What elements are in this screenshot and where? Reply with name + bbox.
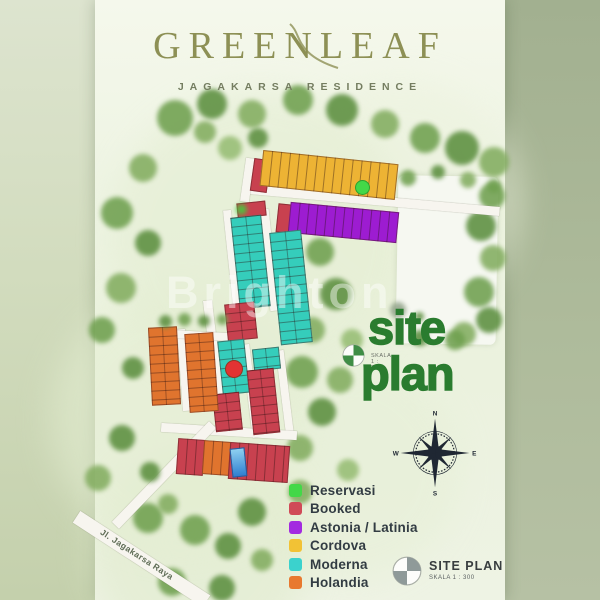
tree-foliage — [209, 575, 235, 600]
footer-title: SITE PLAN — [429, 559, 503, 573]
tree-foliage — [371, 110, 399, 138]
tree-foliage — [215, 533, 241, 559]
legend-swatch — [289, 521, 302, 534]
legend-label: Astonia / Latinia — [310, 520, 418, 535]
tree-foliage — [479, 147, 509, 177]
legend-label: Cordova — [310, 538, 366, 553]
tree-foliage — [464, 277, 494, 307]
watermark: Brighton — [166, 267, 393, 319]
tree-foliage — [460, 172, 476, 188]
lot-block-holandia — [184, 332, 218, 413]
tree-foliage — [326, 94, 358, 126]
flyer-photo: GREENLEAF JAGAKARSA RESIDENCE Jl. Jagaka… — [0, 0, 600, 600]
tree-foliage — [308, 398, 336, 426]
tree-foliage — [286, 356, 318, 388]
tree-foliage — [238, 498, 266, 526]
tree-foliage — [476, 307, 502, 333]
tree-foliage — [445, 131, 479, 165]
compass-west-label: W — [393, 450, 400, 457]
legend-label: Reservasi — [310, 483, 376, 498]
tree-foliage — [180, 515, 210, 545]
lot-block-holandia — [148, 326, 181, 405]
tree-foliage — [400, 170, 416, 186]
tree-foliage — [129, 154, 157, 182]
legend-item: Booked — [289, 501, 418, 516]
legend-swatch — [289, 539, 302, 552]
footer-scale-icon — [392, 556, 422, 586]
tree-foliage — [466, 211, 496, 241]
tree-foliage — [431, 165, 445, 179]
compass-east-label: E — [472, 450, 477, 457]
tree-foliage — [135, 230, 161, 256]
tree-foliage — [157, 100, 193, 136]
tree-foliage — [410, 123, 440, 153]
tree-foliage — [140, 462, 160, 482]
tree-foliage — [106, 273, 136, 303]
tree-foliage — [236, 204, 247, 215]
legend-item: Astonia / Latinia — [289, 520, 418, 535]
footer-brand: SITE PLAN SKALA 1 : 300 — [392, 556, 503, 586]
tree-foliage — [158, 494, 178, 514]
tree-foliage — [480, 245, 506, 271]
tree-foliage — [85, 465, 111, 491]
title-word-plan: plan — [361, 352, 454, 396]
pool-lot — [230, 447, 248, 477]
tree-foliage — [89, 317, 115, 343]
legend-label: Moderna — [310, 557, 368, 572]
tree-foliage — [327, 367, 353, 393]
tree-foliage — [337, 459, 359, 481]
tree-foliage — [122, 357, 144, 379]
legend-label: Holandia — [310, 575, 369, 590]
legend-swatch — [289, 558, 302, 571]
legend-label: Booked — [310, 501, 361, 516]
legend-item: Cordova — [289, 538, 418, 553]
tree-foliage — [218, 136, 242, 160]
tree-foliage — [487, 179, 501, 193]
lot-block-holandia — [202, 440, 231, 476]
tree-foliage — [109, 425, 135, 451]
compass-south-label: S — [433, 490, 438, 497]
brand-n-swash-icon — [276, 20, 366, 72]
tree-foliage — [306, 238, 334, 266]
lot-block-booked — [176, 438, 205, 476]
title-word-site: site — [368, 306, 445, 350]
tree-foliage — [251, 549, 273, 571]
tree-foliage — [238, 100, 266, 128]
legend-swatch — [289, 502, 302, 515]
legend-item: Reservasi — [289, 483, 418, 498]
legend-swatch — [289, 484, 302, 497]
compass-north-label: N — [433, 410, 438, 417]
tree-foliage — [101, 197, 133, 229]
tree-foliage — [248, 128, 268, 148]
reservasi-dot-marker — [355, 180, 370, 195]
booked-dot-marker — [225, 360, 243, 378]
tree-foliage — [197, 89, 227, 119]
tree-foliage — [194, 121, 216, 143]
legend-swatch — [289, 576, 302, 589]
brand-subtitle: JAGAKARSA RESIDENCE — [95, 81, 505, 93]
footer-scale-label: SKALA 1 : 300 — [429, 575, 503, 581]
